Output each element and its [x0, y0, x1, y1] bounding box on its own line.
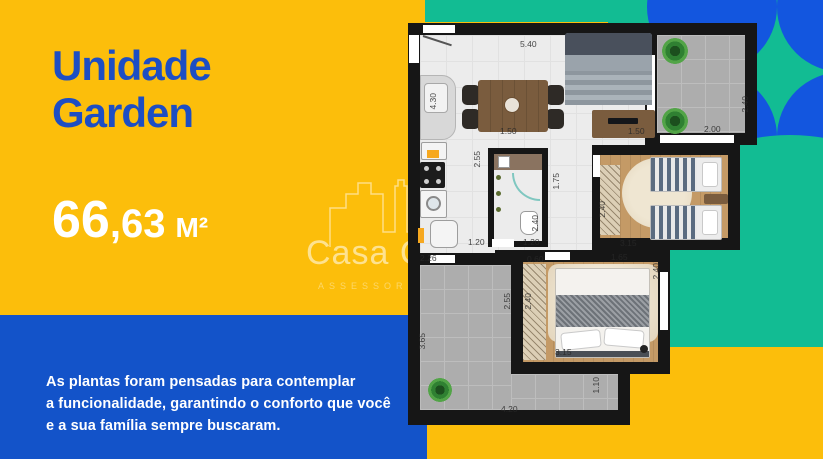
- measurement-label-kitchen: 1.20: [468, 237, 485, 247]
- page-title: Unidade Garden: [52, 42, 211, 136]
- description-line-3: e a sua família sempre buscaram.: [46, 416, 391, 438]
- measurement-label-bathroom: 1.20: [523, 237, 540, 247]
- description-line-1: As plantas foram pensadas para contempla…: [46, 372, 391, 394]
- measurement-label-bedroom-1: 3.15: [620, 238, 637, 248]
- measurement-label-master-bedroom: 1.65: [611, 252, 628, 262]
- title-line-1: Unidade: [52, 42, 211, 89]
- description: As plantas foram pensadas para contempla…: [46, 372, 391, 437]
- title-line-2: Garden: [52, 89, 211, 136]
- measurement-label-dining: 1.50: [500, 126, 517, 136]
- area-decimal: ,63: [110, 202, 166, 247]
- area-value: 66 ,63 M²: [52, 190, 208, 250]
- area-unit: M²: [175, 212, 208, 244]
- measurement-label-kitchen: 4.30: [428, 93, 438, 110]
- measurement-label-master-bedroom: 2.40: [651, 263, 661, 280]
- floor-plan: 5.404.301.501.502.002.402.551.752.403.15…: [408, 23, 757, 425]
- measurement-label-hall: 1.75: [551, 173, 561, 190]
- measurement-label-living: 5.40: [520, 39, 537, 49]
- measurement-label-master-bedroom: 0.60: [527, 254, 544, 264]
- measurement-label-balcony: 2.40: [740, 96, 750, 113]
- measurement-label-balcony: 2.00: [704, 124, 721, 134]
- measurement-label-master-bedroom: 3.15: [555, 347, 572, 357]
- description-line-2: a funcionalidade, garantindo o conforto …: [46, 394, 391, 416]
- measurement-label-master-bedroom: 2.40: [523, 293, 533, 310]
- measurement-label-patio: 4.20: [501, 404, 518, 414]
- measurement-label-kitchen: 2.26: [420, 253, 437, 263]
- measurement-label-bathroom: 2.40: [530, 215, 540, 232]
- measurement-layer: 5.404.301.501.502.002.402.551.752.403.15…: [408, 23, 757, 425]
- measurement-label-patio: 3.65: [417, 333, 427, 350]
- area-whole: 66: [52, 190, 110, 250]
- measurement-label-tv-console: 1.50: [628, 126, 645, 136]
- measurement-label-bedroom-1: 2.40: [597, 201, 607, 218]
- measurement-label-patio: 2.55: [502, 293, 512, 310]
- measurement-label-patio: 1.10: [591, 377, 601, 394]
- poster: Casa Concreto ASSESSORIA IMOBILIÁRIA Uni…: [0, 0, 823, 459]
- measurement-label-bathroom: 2.55: [472, 151, 482, 168]
